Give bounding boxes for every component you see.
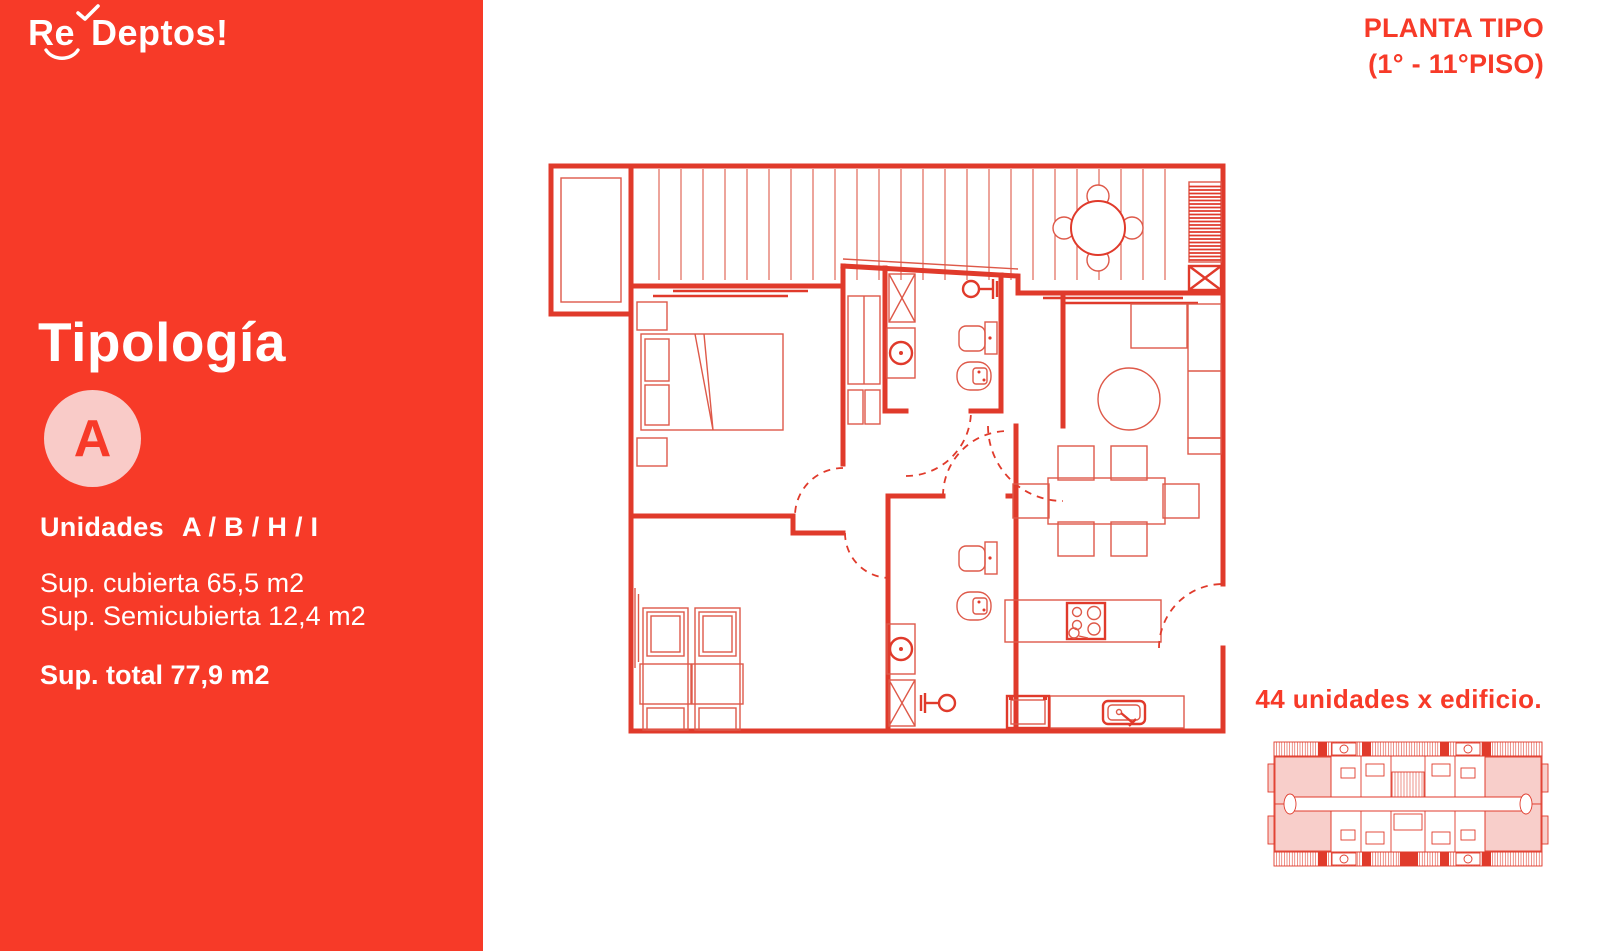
units-value: A / B / H / I	[182, 512, 318, 542]
shower-box	[889, 274, 915, 322]
single-bed-2	[692, 608, 743, 730]
window-marker	[635, 588, 639, 668]
corner-table	[1131, 304, 1187, 348]
typology-badge: A	[44, 390, 141, 487]
wardrobe	[848, 296, 880, 424]
central-corridor	[1288, 797, 1528, 811]
balcony-band-bottom	[1274, 852, 1542, 866]
bidet	[957, 592, 991, 620]
stair-core	[1392, 772, 1424, 797]
units-line: UnidadesA / B / H / I	[40, 512, 318, 543]
units-per-building-note: 44 unidades x edificio.	[1255, 684, 1542, 715]
terrace-table-set	[1053, 185, 1143, 271]
plan-type-label: PLANTA TIPO (1° - 11°PISO)	[1364, 10, 1544, 83]
toilet	[959, 322, 997, 354]
bidet	[957, 362, 991, 390]
island-counter	[1005, 600, 1161, 642]
terrace-walls	[631, 259, 1223, 293]
door-swing	[795, 468, 843, 516]
sink	[887, 624, 915, 674]
sofa	[1188, 304, 1221, 454]
brand-logo: ReDeptos!	[28, 12, 229, 54]
kitchen	[1005, 584, 1223, 728]
bedroom-2	[635, 588, 743, 730]
shower-fixture	[921, 693, 955, 713]
logo-swash-icon	[44, 48, 80, 61]
bedside-table	[637, 438, 667, 466]
double-bed	[641, 334, 783, 430]
door-swing-bedroom2	[845, 533, 890, 578]
balcony	[551, 166, 631, 314]
sup-total: Sup. total 77,9 m2	[40, 660, 270, 691]
floor-plan-drawing	[543, 156, 1233, 746]
balcony-band-top	[1274, 742, 1542, 756]
window-marker	[1043, 298, 1198, 303]
dining-set	[1013, 446, 1199, 556]
nightstand	[637, 302, 667, 330]
sup-semicubierta: Sup. Semicubierta 12,4 m2	[40, 601, 366, 632]
bathroom-1	[885, 268, 1001, 476]
plan-type-line1: PLANTA TIPO	[1364, 10, 1544, 46]
living-room	[1013, 293, 1221, 556]
bedroom-bottom-wall	[631, 516, 843, 533]
single-bed-1	[640, 608, 691, 730]
sink-counter	[1050, 696, 1184, 728]
shaft-x-box	[1189, 266, 1221, 290]
ac-unit	[1189, 182, 1221, 262]
toilet	[959, 542, 997, 574]
building-plate-thumbnail	[1266, 738, 1550, 870]
check-icon	[76, 4, 100, 22]
page-title: Tipología	[38, 310, 286, 374]
door-swing-living	[988, 426, 1063, 501]
typology-letter: A	[74, 409, 112, 469]
master-bedroom	[631, 266, 843, 533]
round-rug	[1098, 368, 1160, 430]
building-plate-drawing	[1266, 738, 1550, 870]
sink	[887, 328, 915, 378]
fridge	[1007, 696, 1049, 728]
window-marker	[653, 291, 808, 296]
door-swing	[906, 411, 971, 476]
units-label: Unidades	[40, 512, 164, 542]
hall	[845, 426, 1063, 578]
entry-door-swing	[1159, 584, 1223, 648]
logo-deptos-text: Deptos!	[91, 12, 229, 54]
corridor-end-left	[1284, 794, 1296, 814]
page: ReDeptos! Tipología A UnidadesA / B / H …	[0, 0, 1600, 951]
bathroom-2	[887, 426, 1016, 731]
shower-box	[889, 680, 915, 726]
floor-plan	[543, 156, 1233, 746]
plan-type-line2: (1° - 11°PISO)	[1364, 46, 1544, 82]
shower-fixture	[963, 279, 997, 299]
sidebar: ReDeptos! Tipología A UnidadesA / B / H …	[0, 0, 483, 951]
sup-cubierta: Sup. cubierta 65,5 m2	[40, 568, 304, 599]
corridor-end-right	[1520, 794, 1532, 814]
